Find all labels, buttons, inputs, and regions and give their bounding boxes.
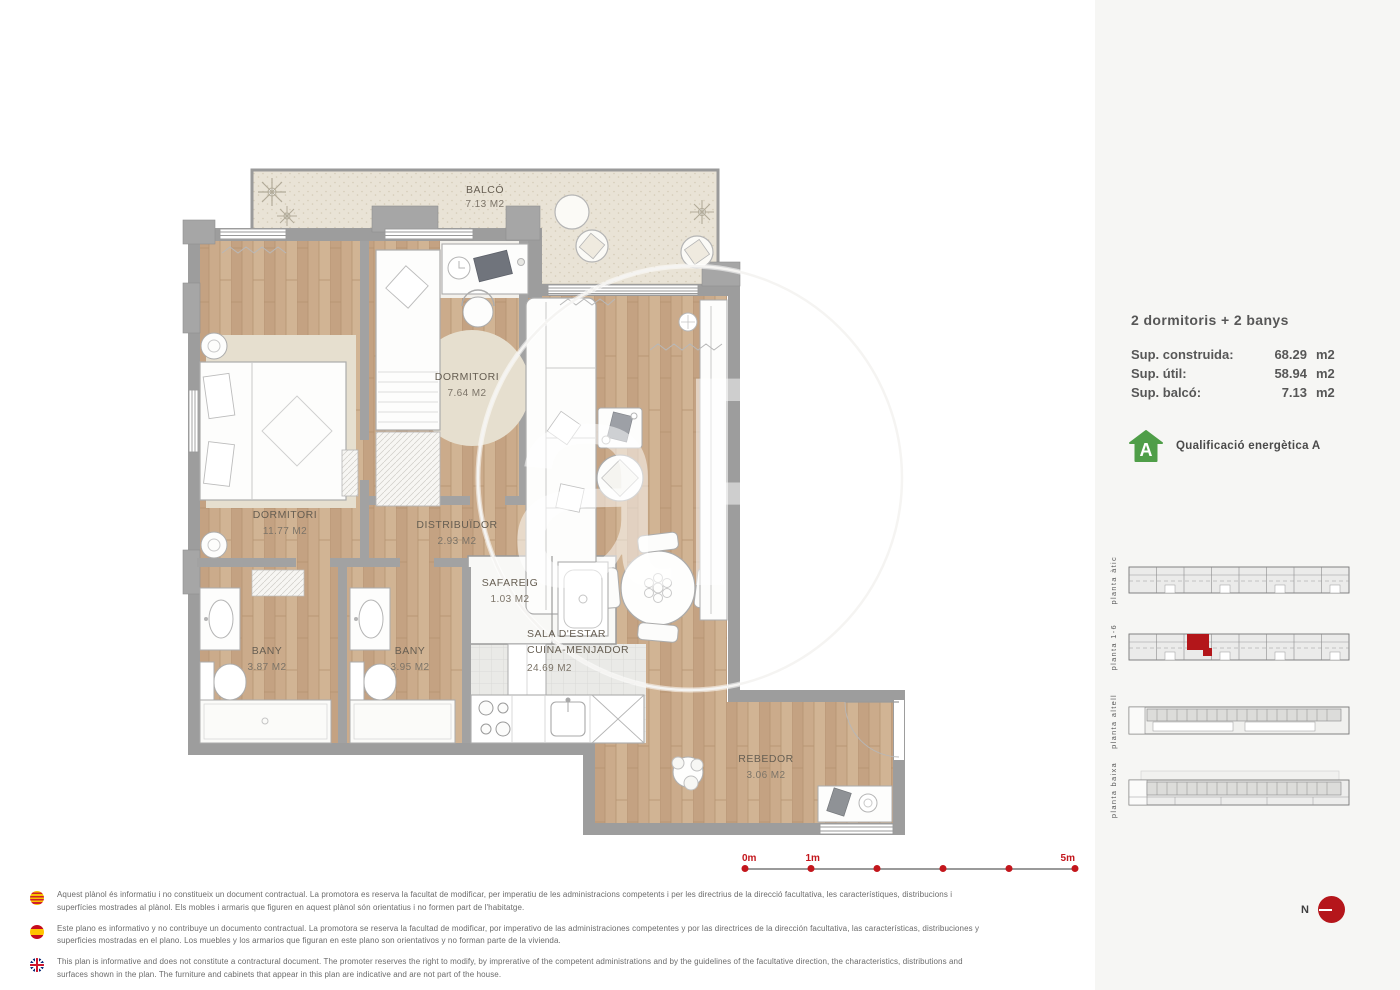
room-area-dormitori-2: 7.64 M2 (448, 388, 487, 399)
sink-basin (209, 600, 233, 638)
toilet (214, 664, 246, 700)
room-area-bany-2: 3.95 M2 (391, 662, 430, 673)
section-diagram-atic (1127, 560, 1352, 600)
floor-plan-sheet: aP BALCÓ 7.13 M2 DORMITORI 7.64 M2 DORMI… (0, 0, 1400, 990)
room-label-balco: BALCÓ (466, 183, 504, 196)
room-area-bany-1: 3.87 M2 (248, 662, 287, 673)
scale-line (744, 868, 1073, 870)
summary-unit: m2 (1307, 365, 1361, 384)
section-label: planta altell (1109, 694, 1118, 749)
desk-chair (463, 297, 493, 327)
surface-summary: 2 dormitoris + 2 banys Sup. construida: … (1131, 312, 1361, 403)
scale-label-0m: 0m (742, 853, 756, 864)
summary-row: Sup. útil: 58.94 m2 (1131, 365, 1361, 384)
scale-dot (1006, 865, 1013, 872)
section-diagram-planta-1-6 (1127, 627, 1352, 667)
building-section-altell: planta altell (1109, 694, 1352, 749)
scale-bar: 0m 1m 5m (742, 855, 1075, 875)
summary-value: 58.94 (1251, 365, 1307, 384)
right-sidebar: 2 dormitoris + 2 banys Sup. construida: … (1095, 0, 1400, 990)
room-label-sala-2: CUINA-MENJADOR (527, 644, 629, 656)
summary-unit: m2 (1307, 346, 1361, 365)
disclaimer-spanish: Este plano es informativo y no contribuy… (30, 923, 1040, 949)
room-label-bany-1: BANY (252, 645, 283, 657)
room-area-safareig: 1.03 M2 (491, 594, 530, 605)
compass-icon (1318, 896, 1345, 923)
room-area-dormitori-1: 11.77 M2 (263, 526, 307, 537)
disclaimer-text-spanish: Este plano es informativo y no contribuy… (57, 923, 987, 949)
disclaimer-catalan: Aquest plànol és informatiu i no constit… (30, 889, 1040, 915)
room-label-sala: SALA D'ESTAR (527, 628, 606, 640)
shower-tray (350, 700, 455, 743)
uk-flag-icon (30, 958, 44, 972)
section-label: planta baixa (1109, 762, 1118, 818)
energy-rating: A Qualificació energètica A (1129, 430, 1320, 462)
scale-dot (940, 865, 947, 872)
scale-dot (874, 865, 881, 872)
catalonia-flag-icon (30, 891, 44, 905)
summary-value: 7.13 (1251, 384, 1307, 403)
shower-tray (200, 700, 331, 743)
sink-basin (359, 600, 383, 638)
summary-label: Sup. útil: (1131, 365, 1251, 384)
summary-row: Sup. balcó: 7.13 m2 (1131, 384, 1361, 403)
scale-label-5m: 5m (1061, 853, 1075, 864)
apartment-type-title: 2 dormitoris + 2 banys (1131, 312, 1361, 328)
room-label-rebedor: REBEDOR (738, 753, 793, 765)
spain-flag-icon (30, 925, 44, 939)
bowl (859, 794, 877, 812)
disclaimers: Aquest plànol és informatiu i no constit… (30, 889, 1040, 990)
disclaimer-english: This plan is informative and does not co… (30, 956, 1040, 982)
summary-row: Sup. construida: 68.29 m2 (1131, 346, 1361, 365)
summary-label: Sup. construida: (1131, 346, 1251, 365)
floor-plan-svg: aP BALCÓ 7.13 M2 DORMITORI 7.64 M2 DORMI… (0, 0, 1095, 990)
section-diagram-altell (1127, 701, 1352, 741)
scale-dot (1072, 865, 1079, 872)
wicker-chair (681, 236, 713, 268)
summary-label: Sup. balcó: (1131, 384, 1251, 403)
section-label: planta àtic (1109, 556, 1118, 605)
wicker-chair (576, 230, 608, 262)
room-label-distribuidor: DISTRIBUÏDOR (416, 519, 497, 531)
room-label-dormitori-2: DORMITORI (435, 371, 499, 383)
disclaimer-text-catalan: Aquest plànol és informatiu i no constit… (57, 889, 987, 915)
desk-lamp (518, 259, 525, 266)
disclaimer-text-english: This plan is informative and does not co… (57, 956, 987, 982)
north-indicator: N (1301, 896, 1345, 923)
watermark: aP (478, 266, 902, 690)
building-section-planta-1-6: planta 1-6 (1109, 624, 1352, 670)
scale-dot (808, 865, 815, 872)
building-section-atic: planta àtic (1109, 556, 1352, 605)
watermark-text: aP (505, 313, 872, 649)
room-label-safareig: SAFAREIG (482, 577, 539, 589)
room-label-bany-2: BANY (395, 645, 426, 657)
scale-dot (742, 865, 749, 872)
room-area-sala: 24.69 M2 (527, 663, 572, 674)
plant-icon (258, 178, 286, 206)
building-section-baixa: planta baixa (1109, 762, 1352, 818)
bath-cabinet (252, 570, 304, 596)
wardrobe (376, 432, 440, 506)
energy-rating-label: Qualificació energètica A (1176, 440, 1320, 452)
nightstand (201, 532, 227, 558)
balcony-table (555, 195, 589, 229)
section-label: planta 1-6 (1109, 624, 1118, 670)
toilet-tank (350, 662, 364, 702)
wardrobe (342, 450, 358, 496)
nightstand (201, 333, 227, 359)
section-diagram-baixa (1127, 769, 1352, 811)
north-label: N (1301, 904, 1309, 916)
room-label-dormitori-1: DORMITORI (253, 509, 317, 521)
summary-unit: m2 (1307, 384, 1361, 403)
summary-value: 68.29 (1251, 346, 1307, 365)
energy-letter: A (1140, 440, 1153, 460)
room-area-balco: 7.13 M2 (466, 199, 505, 210)
plant-icon (277, 206, 297, 226)
room-area-distribuidor: 2.93 M2 (438, 536, 477, 547)
energy-house-icon: A (1129, 430, 1163, 462)
scale-label-1m: 1m (805, 853, 819, 864)
room-area-rebedor: 3.06 M2 (747, 770, 786, 781)
toilet-tank (200, 662, 214, 702)
